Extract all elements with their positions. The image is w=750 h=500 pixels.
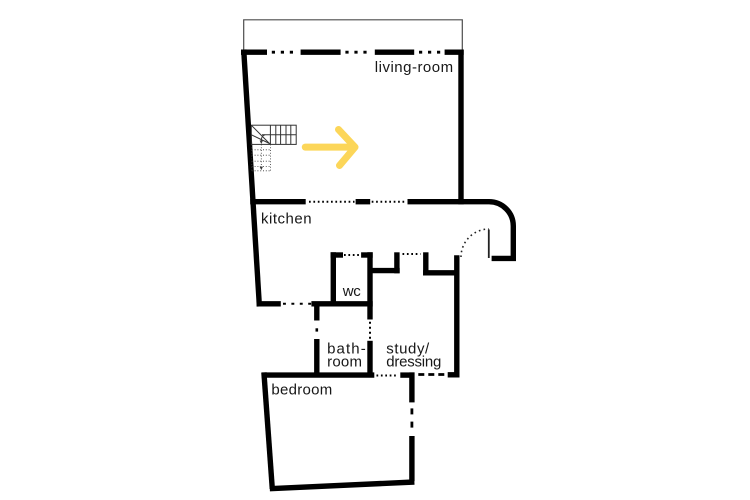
svg-text:bedroom: bedroom	[271, 381, 332, 398]
svg-text:living-room: living-room	[375, 59, 453, 76]
svg-text:dressing: dressing	[386, 354, 441, 371]
svg-text:room: room	[327, 354, 362, 371]
svg-text:kitchen: kitchen	[261, 211, 312, 228]
svg-text:wc: wc	[342, 283, 362, 300]
